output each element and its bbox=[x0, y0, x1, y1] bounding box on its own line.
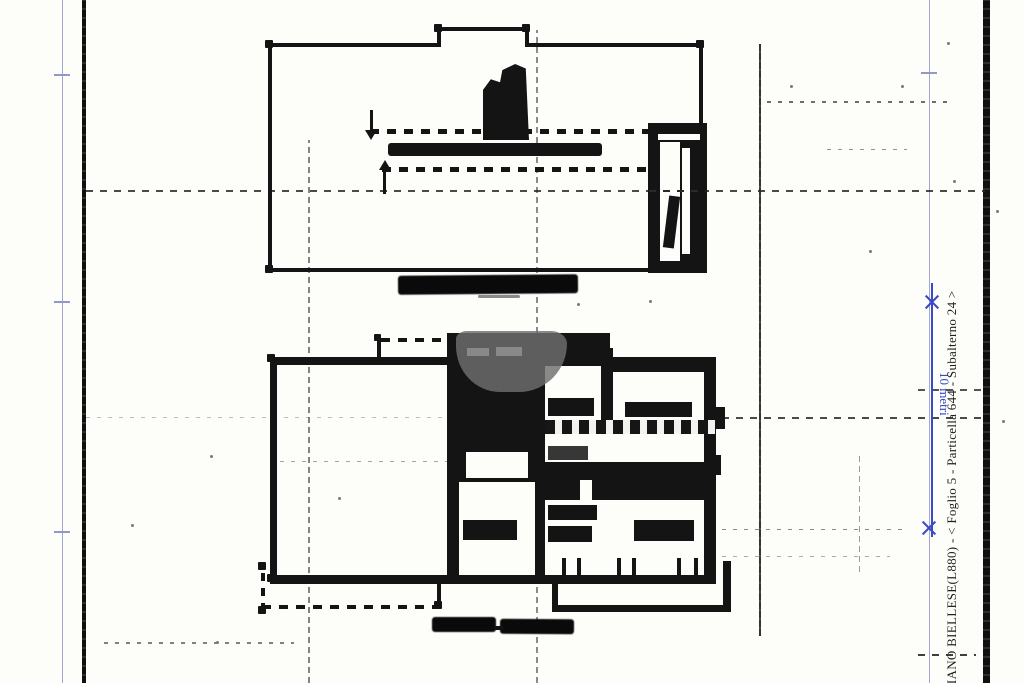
window-bar bbox=[548, 526, 592, 542]
scale-bar-tick-bottom bbox=[920, 519, 938, 537]
window-bar bbox=[548, 398, 594, 416]
upper-drawing-notch-top bbox=[437, 27, 529, 31]
arrow-stem bbox=[383, 170, 386, 194]
stair-slot bbox=[658, 134, 700, 140]
speck bbox=[1002, 420, 1005, 423]
scanned-cadastral-sheet: 10 metri GLIANO BIELLESE(L880) - < Fogli… bbox=[0, 0, 1024, 683]
speck bbox=[338, 497, 341, 500]
wall-nub bbox=[716, 407, 725, 429]
plan-mid-band bbox=[540, 462, 704, 500]
speck bbox=[577, 303, 580, 306]
cadastral-reference-label: GLIANO BIELLESE(L880) - < Foglio 5 - Par… bbox=[944, 290, 960, 683]
dashed-level-line-upper bbox=[370, 129, 656, 134]
grid-line-horizontal bbox=[700, 529, 905, 530]
wall-nub bbox=[714, 455, 721, 475]
plan-step-dashed bbox=[381, 338, 447, 342]
corner-dot bbox=[258, 562, 266, 570]
grid-line-horizontal bbox=[700, 556, 890, 557]
corner-dot bbox=[267, 354, 275, 362]
railing-tick bbox=[694, 558, 698, 576]
corner-dot bbox=[258, 606, 266, 614]
sheet-edge-right bbox=[983, 0, 990, 683]
balcony-bottom-edge bbox=[552, 605, 731, 612]
speck bbox=[216, 641, 219, 644]
speck bbox=[210, 455, 213, 458]
fold-tick bbox=[921, 72, 937, 74]
arrow-down-icon bbox=[365, 130, 377, 140]
plan-wall-top-right bbox=[607, 357, 716, 372]
fold-tick bbox=[54, 301, 70, 303]
extension-dashed-h bbox=[262, 605, 437, 609]
fold-line-left bbox=[62, 0, 63, 683]
window-bar bbox=[634, 520, 694, 541]
fold-tick bbox=[54, 74, 70, 76]
balcony-right-edge bbox=[723, 561, 731, 612]
grid-line-horizontal bbox=[104, 642, 294, 644]
grid-line-vertical bbox=[759, 44, 761, 636]
corner-dot bbox=[434, 24, 442, 32]
arrow-up-icon bbox=[379, 160, 391, 170]
railing-tick bbox=[632, 558, 636, 576]
illegible-caption-smudge-lower bbox=[500, 619, 574, 635]
scale-bar bbox=[931, 283, 933, 537]
railing-tick bbox=[617, 558, 621, 576]
stair-slot bbox=[682, 148, 690, 254]
caption-underline-smear bbox=[478, 295, 520, 298]
speck bbox=[131, 524, 134, 527]
corner-dot bbox=[374, 334, 381, 341]
dense-white-patch bbox=[466, 452, 528, 478]
speck bbox=[869, 250, 872, 253]
railing-tick bbox=[562, 558, 566, 576]
corner-dot bbox=[696, 40, 704, 48]
upper-drawing-wall-left bbox=[268, 43, 272, 272]
illegible-caption-smudge-upper bbox=[398, 274, 578, 295]
caption-connector bbox=[494, 626, 504, 630]
speck bbox=[790, 85, 793, 88]
window-strip bbox=[545, 420, 716, 434]
upper-drawing-wall-top-left bbox=[268, 43, 440, 47]
plan-wall-top-left bbox=[270, 357, 452, 365]
grid-line-horizontal bbox=[767, 101, 950, 103]
window-bar bbox=[548, 505, 597, 520]
speck bbox=[953, 180, 956, 183]
grid-line-vertical bbox=[308, 140, 310, 683]
railing-tick bbox=[677, 558, 681, 576]
corner-dot bbox=[267, 574, 275, 582]
window-bar bbox=[463, 520, 517, 540]
corner-dot bbox=[265, 265, 273, 273]
upper-drawing-wall-bottom bbox=[268, 268, 707, 272]
window-bar bbox=[625, 402, 692, 417]
upper-drawing-wall-top-right bbox=[525, 43, 703, 47]
fold-tick bbox=[54, 531, 70, 533]
grid-line-vertical bbox=[859, 452, 860, 572]
dashed-level-line-lower bbox=[382, 167, 650, 172]
grid-line-horizontal bbox=[86, 190, 985, 192]
speck bbox=[996, 210, 999, 213]
sheet-edge-left bbox=[82, 0, 86, 683]
plan-wall-left bbox=[270, 357, 277, 583]
arrow-stem bbox=[370, 110, 373, 132]
grid-line-over-stairs bbox=[649, 190, 706, 192]
grid-line-horizontal bbox=[827, 149, 907, 150]
texture-mark bbox=[548, 446, 588, 460]
plan-wall-bottom bbox=[270, 575, 716, 584]
illegible-caption-smudge-lower bbox=[432, 617, 496, 632]
scale-bar-tick-top bbox=[923, 293, 941, 311]
corner-dot bbox=[265, 40, 273, 48]
railing-tick bbox=[577, 558, 581, 576]
speck bbox=[947, 42, 950, 45]
speck bbox=[649, 300, 652, 303]
plan-dense-left-wall bbox=[447, 333, 459, 583]
corner-dot bbox=[522, 24, 530, 32]
door-gap bbox=[580, 480, 592, 500]
extension-dashed-v bbox=[261, 565, 265, 611]
floor-slab-bar bbox=[388, 143, 602, 156]
speck bbox=[901, 85, 904, 88]
